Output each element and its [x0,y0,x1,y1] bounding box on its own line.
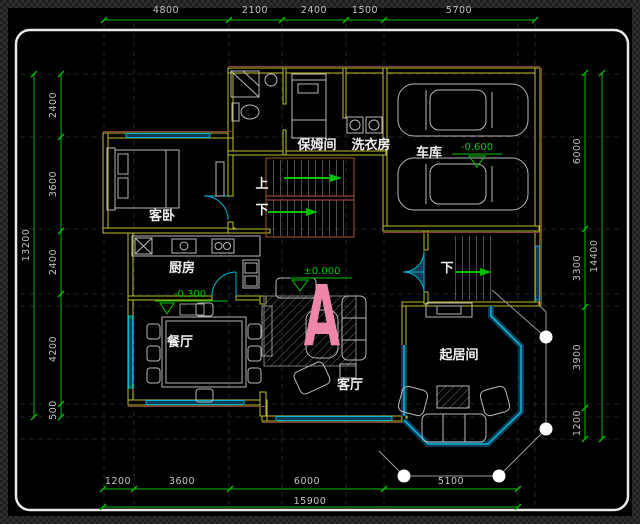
room-label-sitting: 起居间 [438,347,478,363]
dim-right-total: 14400 [589,240,600,273]
level-triangle-icon [160,303,174,314]
room-label-garage: 车库 [416,145,442,161]
laundry-washers [347,117,382,133]
dim-top-4: 1500 [352,5,378,16]
car-icon [398,84,528,136]
section-marker-a: A [304,268,341,365]
dining-set [147,303,261,402]
bathroom-fixtures [231,71,277,121]
column-icon [540,331,553,344]
room-label-guest-bedroom: 客卧 [149,208,175,224]
dim-bottom-2: 3600 [169,476,195,487]
dim-top-5: 5700 [446,5,472,16]
nanny-bed [292,74,326,138]
room-label-dining: 餐厅 [166,334,193,350]
dim-bottom-1: 1200 [105,476,131,487]
grid-lines [20,24,620,505]
column-icon [493,470,506,483]
room-label-laundry: 洗衣房 [351,137,390,153]
dim-bottom-total: 15900 [294,496,327,507]
room-label-living: 客厅 [337,377,363,393]
dim-left-total: 13200 [21,229,32,262]
level-kitchen: -0.300 [174,289,206,300]
dim-left-5: 500 [48,400,59,420]
dim-top-3: 2400 [301,5,327,16]
dim-bottom-3: 6000 [294,476,320,487]
dim-top-1: 4800 [153,5,179,16]
dim-left-2: 3600 [48,171,59,197]
column-icon [398,470,411,483]
dim-left-3: 2400 [48,249,59,275]
double-door-leaf-bottom [403,272,424,293]
exterior-stair-label-down: 下 [440,261,453,276]
dim-bottom-4: 5100 [438,476,464,487]
level-garage: -0.600 [461,142,493,153]
floor-plan-svg: 4800 2100 2400 1500 5700 1200 3600 6000 … [0,0,640,524]
car-icon [398,158,528,210]
dim-right-1: 6000 [572,138,583,164]
column-icon [540,423,553,436]
room-label-nanny: 保姆间 [296,137,336,153]
double-door-leaf-top [403,251,424,272]
stair-label-down: 下 [255,203,268,218]
interior-staircase [266,158,354,237]
cad-viewport[interactable]: 4800 2100 2400 1500 5700 1200 3600 6000 … [0,0,640,524]
kitchen-counter [132,236,260,288]
guest-bedroom-furniture [107,148,224,210]
sitting-room-furniture [397,303,511,442]
stair-label-up: 上 [255,177,268,192]
dim-right-3: 3900 [572,344,583,370]
room-label-kitchen: 厨房 [169,260,195,276]
dim-top-2: 2100 [242,5,268,16]
dim-right-4: 1200 [572,410,583,436]
dim-left-4: 4200 [48,336,59,362]
dim-right-2: 3300 [572,255,583,281]
dim-left-1: 2400 [48,92,59,118]
